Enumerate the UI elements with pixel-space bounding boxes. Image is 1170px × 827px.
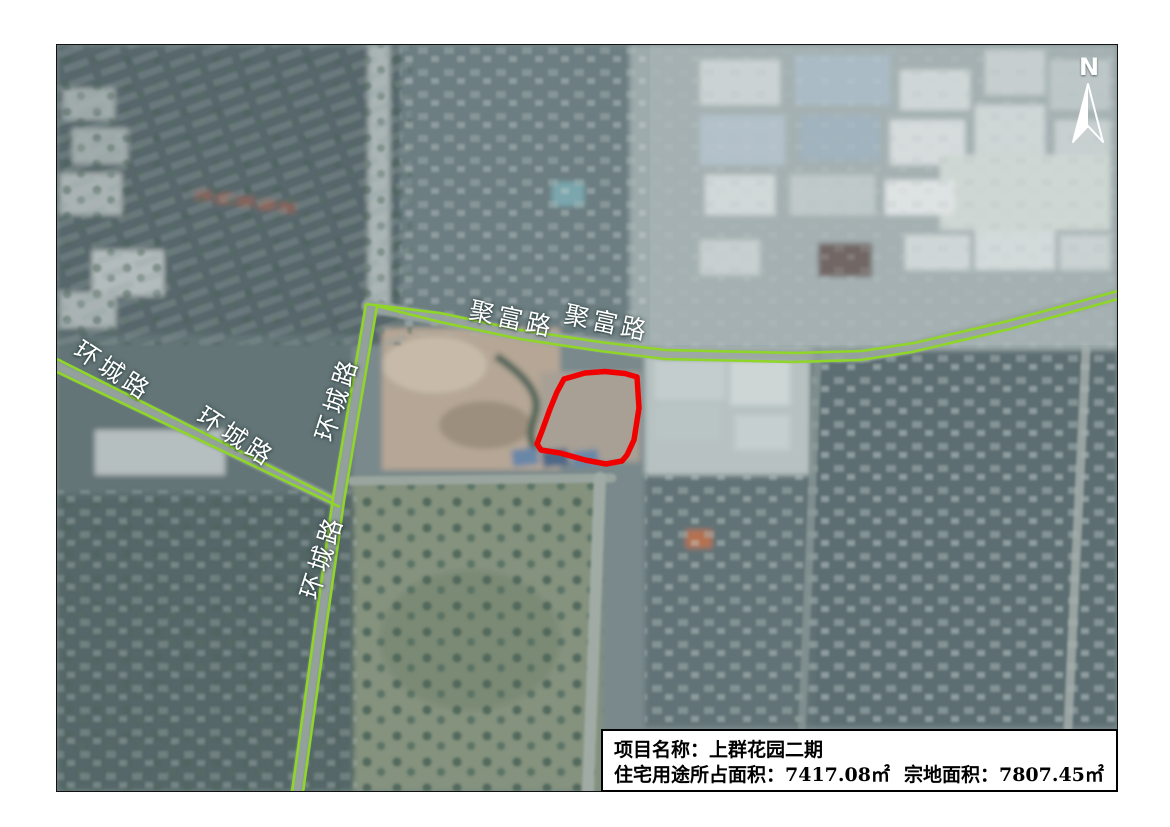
parcel-area-label: 宗地面积：: [904, 763, 999, 788]
project-label: 项目名称：: [614, 738, 709, 763]
project-name: 上群花园二期: [709, 738, 823, 763]
info-line-project: 项目名称：上群花园二期: [614, 738, 1116, 763]
north-label: N: [1075, 53, 1103, 81]
residential-area-value: 7417.08㎡: [785, 763, 890, 788]
residential-area-label: 住宅用途所占面积：: [614, 763, 785, 788]
satellite-map: 环城路 环城路 环城路 环城路 聚富路 聚富路 N 项目名称：上群花园二期 住宅…: [56, 44, 1118, 792]
parcel-area-value: 7807.45㎡: [999, 763, 1104, 788]
info-line-areas: 住宅用途所占面积：7417.08㎡宗地面积：7807.45㎡: [614, 763, 1116, 788]
page-root: 环城路 环城路 环城路 环城路 聚富路 聚富路 N 项目名称：上群花园二期 住宅…: [0, 0, 1170, 827]
haze-overlay-2: [650, 45, 1117, 345]
info-box: 项目名称：上群花园二期 住宅用途所占面积：7417.08㎡宗地面积：7807.4…: [601, 729, 1118, 792]
